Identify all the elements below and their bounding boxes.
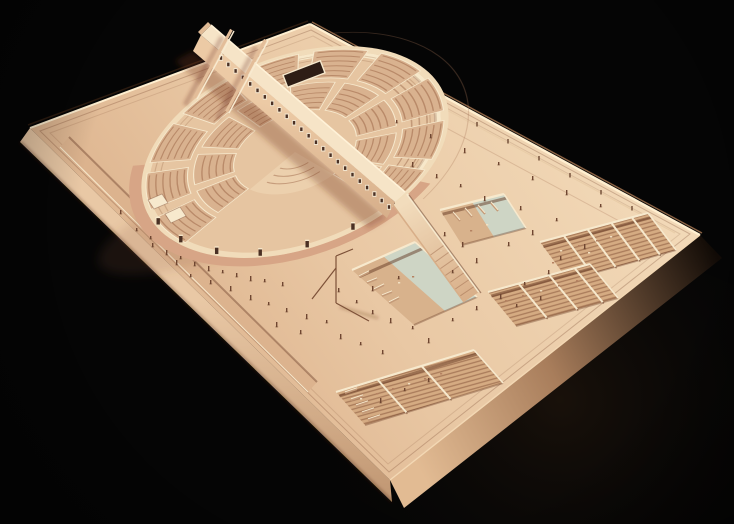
photo-vignette	[0, 0, 734, 524]
vignette-layer	[0, 0, 734, 524]
model-scene-svg	[0, 0, 734, 524]
architectural-model-photo	[0, 0, 734, 524]
